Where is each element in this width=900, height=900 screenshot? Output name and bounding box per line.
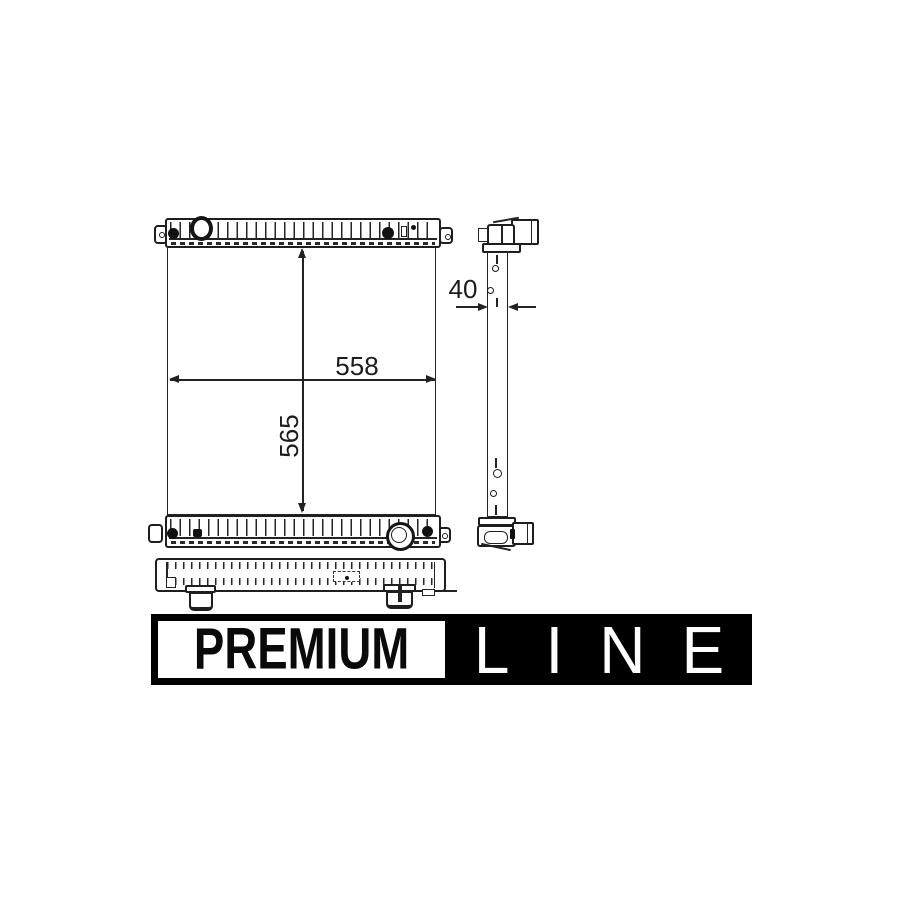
height-dimension-line	[302, 251, 304, 511]
sensor-dot-right	[382, 227, 394, 239]
filler-cap-icon	[190, 216, 213, 241]
bracket-dot	[411, 225, 416, 230]
premium-box: PREMIUM	[151, 614, 452, 685]
depth-dimension-label: 40	[445, 276, 481, 302]
left-end-detail	[166, 577, 176, 588]
bottom-pipe-endcap	[527, 524, 529, 543]
width-dimension-line	[170, 379, 435, 381]
bottom-view-endline-right	[434, 562, 436, 588]
centerline-hole-3	[493, 469, 502, 478]
bottom-view-comb-top	[167, 562, 434, 569]
bottom-fitting-clip	[510, 529, 515, 539]
right-mount-foot	[386, 591, 413, 609]
height-dimension-label: 565	[276, 408, 302, 464]
left-mount-foot	[189, 592, 213, 611]
depth-dim-arrow-right-icon	[508, 303, 518, 311]
depth-dim-arrow-left-icon	[478, 303, 488, 311]
centerline-dash-1	[496, 255, 498, 264]
top-fitting-bracket	[478, 228, 488, 242]
width-dimension-label: 558	[327, 353, 387, 377]
right-foot-pipe	[398, 584, 402, 602]
outlet-port-inner	[391, 527, 407, 543]
tab-hole-top-left	[159, 232, 165, 238]
bracket-detail	[401, 226, 407, 237]
premium-label: PREMIUM	[194, 620, 409, 678]
premium-line-banner: PREMIUM LINE	[151, 614, 752, 685]
width-dim-arrow-left-icon	[169, 375, 179, 383]
height-dim-arrow-top-icon	[298, 248, 306, 258]
tab-hole-bottom-right	[442, 533, 448, 539]
mount-tab-bottom-left	[148, 524, 163, 543]
bottom-view-label-plate	[333, 571, 360, 582]
centerline-hole-2	[487, 287, 494, 294]
top-inlet-pipe	[511, 219, 539, 245]
bottom-left-plug	[167, 528, 178, 539]
height-dim-arrow-bottom-icon	[298, 503, 306, 513]
bottom-outlet-pipe	[512, 522, 534, 545]
radiator-front-view: 565 558	[148, 215, 454, 550]
line-label: LINE	[444, 616, 760, 683]
top-tank-dash-row	[171, 242, 435, 245]
radiator-side-view: 40	[445, 215, 545, 555]
right-end-detail	[422, 589, 435, 596]
centerline-hole-4	[490, 490, 497, 497]
drain-plug-dot-left	[168, 228, 179, 239]
mount-tab-top-right	[439, 227, 453, 244]
tab-hole-top-right	[445, 234, 451, 240]
top-pipe-endcap	[531, 221, 533, 243]
radiator-drawing-page: 565 558	[0, 0, 900, 900]
centerline-hole-1	[492, 265, 499, 272]
line-box: LINE	[452, 614, 752, 685]
width-dim-arrow-right-icon	[426, 375, 436, 383]
top-fitting-line	[501, 226, 503, 244]
centerline-dash-3	[495, 458, 497, 468]
centerline-dash-4	[495, 505, 497, 515]
centerline-dash-2	[496, 298, 498, 307]
top-tank-band	[169, 238, 437, 240]
radiator-bottom-view	[148, 555, 460, 613]
bottom-fitting-inner	[484, 531, 508, 544]
right-leader-line	[443, 590, 457, 592]
outlet-port	[386, 522, 415, 551]
bottom-left-fitting	[193, 529, 202, 537]
plate-dot	[345, 576, 349, 580]
bottom-right-plug	[422, 526, 433, 537]
